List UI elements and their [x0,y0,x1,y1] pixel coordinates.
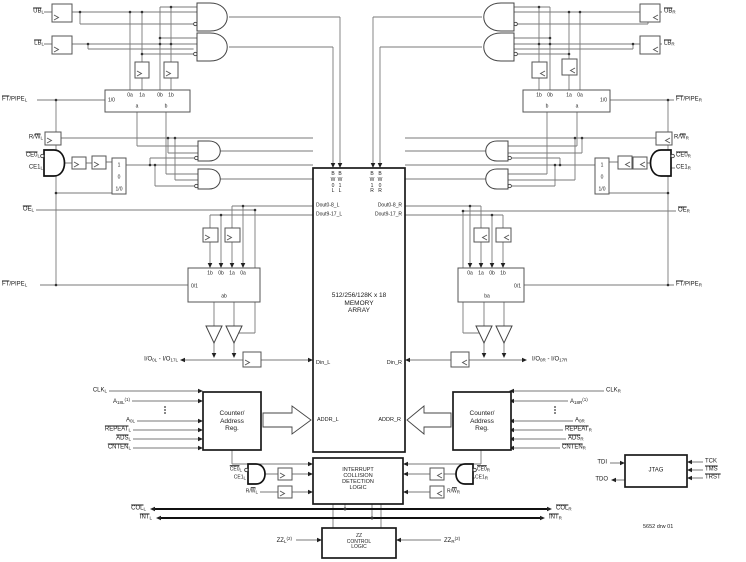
mux4-in-0b: 0b [489,271,495,277]
jtag-box-title: JTAG [649,468,664,475]
mux3-out-a: a [576,104,579,110]
and-gate-lb-right [484,33,514,61]
mux3-in-0a: 0a [577,93,583,99]
signal-ubl-label: UBL [33,9,44,16]
signal-ftpipe-r-bottom-label: FT/PIPER [676,282,702,289]
signal-cnten-l-label: CNTENL [108,445,131,452]
signal-ce1-l-label: CE1L [29,165,43,172]
mux1-out-b: b [165,104,168,110]
and-gate-lb-left [197,33,227,61]
mux4-in-0a: 0a [467,271,473,277]
and-gate-ce-left [44,150,65,176]
signal-oe-l-label: OEL [23,207,34,214]
mux2-in-1b: 1b [207,271,213,277]
mux4-select: 0/1 [514,284,521,290]
zz-box-title: ZZ CONTROL LOGIC [322,534,396,551]
memory-bw1l-pin: B W 1 L [336,172,344,195]
mux2-in-0b: 0b [218,271,224,277]
io-bus-right-label: I/O0R - I/O17R [532,357,567,364]
signal-ce0-r-int-label: CE0R [477,467,490,473]
block-diagram: UBL LBL FT/PIPEL FT/PIPEL R/WL CE0L CE1L… [0,0,746,562]
latch-intrw-left [278,486,292,498]
latch-ce1-left [72,157,86,169]
signal-rw-l-int-label: R/WL [246,489,258,495]
memory-din-r-pin: Din_R [387,360,402,366]
mux2-out-ab: ab [221,294,227,300]
signal-clk-r-label: CLKR [606,388,621,395]
signal-tms-label: TMS [705,467,718,474]
signal-zz-r-label: ZZR(2) [444,535,460,545]
signal-ftpipe-r-top-label: FT/PIPER [676,97,702,104]
mux-byteen-left [105,90,190,112]
and-gate-int-right [456,464,473,484]
mux2-in-0a: 0a [240,271,246,277]
mux1-in-1b: 1b [168,93,174,99]
col-int-buses [155,509,547,518]
signal-repeat-l-label: REPEATL [105,427,131,434]
signal-ftpipe-l-top-label: FT/PIPEL [2,97,27,104]
signal-oe-r-label: OER [678,208,690,215]
signal-cnten-r-label: CNTENR [562,445,586,452]
signal-ubr-label: UBR [664,9,676,16]
latch-intce-right [430,468,444,480]
signal-tdi-label: TDI [597,460,607,467]
mux1-out-a: a [136,104,139,110]
signal-int-r-label: INTR [549,515,562,522]
signal-ce0-l-int-label: CE0L [230,467,242,473]
memory-dout-r1-pin: Dout0-8_R [378,203,402,209]
mux-ce-left-sel: 1/0 [116,187,123,193]
signal-lbl-label: LBL [34,41,44,48]
memory-dout-r2-pin: Dout9-17_R [375,212,402,218]
memory-din-l-pin: Din_L [316,360,330,366]
mux3-in-1a: 1a [566,93,572,99]
major-boxes [203,168,687,558]
mux-ce-right-1: 1 [601,163,604,169]
mux1-select: 1/0 [108,98,115,104]
latch-intce-left [278,468,292,480]
and-gate-ub-left [197,3,227,31]
signal-col-r-label: COLR [556,506,572,513]
latch-intrw-right [430,486,444,498]
signal-col-l-label: COLL [131,506,146,513]
mux3-out-b: b [546,104,549,110]
mux3-select: 1/0 [600,98,607,104]
memory-addr-l-pin: ADDR_L [317,417,339,423]
mux1-in-0a: 0a [127,93,133,99]
and-gate-bw0-right [486,141,508,161]
signal-a0-l-label: A0L [126,418,135,425]
signal-rw-r-int-label: R/WR [447,489,460,495]
memory-bw1r-pin: B W 1 R [368,172,376,195]
signal-ce0-l-label: CE0L [26,153,40,160]
counter-left-title: Counter/ Address Reg. [203,410,261,433]
mux-ce-left-1: 1 [118,163,121,169]
counter-right-title: Counter/ Address Reg. [453,410,511,433]
signal-ce0-r-label: CE0R [676,153,691,160]
and-gate-bw1-left [198,169,220,189]
signal-tdo-label: TDO [595,477,608,484]
drawing-number: 5652 drw 01 [643,524,673,530]
mux4-out-ba: ba [484,294,490,300]
signal-tck-label: TCK [705,459,717,466]
signal-ftpipe-l-bottom-label: FT/PIPEL [2,282,27,289]
signal-int-l-label: INTL [140,515,152,522]
signal-ce1-r-int-label: CE1R [475,475,488,481]
and-gate-ce-right [651,150,672,176]
memory-array-title: 512/256/128K x 18 MEMORY ARRAY [313,292,405,315]
and-gate-bw0-left [198,141,220,161]
signal-ads-l-label: ADSL [116,436,131,443]
signal-clk-l-label: CLKL [93,388,107,395]
memory-dout-l1-pin: Dout0-8_L [316,203,339,209]
io-bus-left-label: I/O0L - I/O17L [144,357,178,364]
memory-dout-l2-pin: Dout9-17_L [316,212,342,218]
signal-a18-r-label: A18R(1) [570,396,588,406]
mux3-in-0b: 0b [547,93,553,99]
memory-addr-r-pin: ADDR_R [378,417,401,423]
mux1-in-1a: 1a [139,93,145,99]
mux4-in-1a: 1a [478,271,484,277]
and-gate-ub-right [484,3,514,31]
mux-ce-right-sel: 1/0 [599,187,606,193]
signal-rw-r-label: R/WR [674,135,689,142]
signal-a0-r-label: A0R [575,418,585,425]
signal-ce1-r-label: CE1R [676,165,691,172]
signal-lbr-label: LBR [664,41,675,48]
mux1-in-0b: 0b [157,93,163,99]
memory-bw0r-pin: B W 0 R [376,172,384,195]
mux-ce-right-0: 0 [601,175,604,181]
latch-ce1-right [633,157,647,169]
mux2-select: 0/1 [191,284,198,290]
signal-rw-l-label: R/WL [29,135,43,142]
and-gate-int-left [248,464,265,484]
and-gate-bw1-right [486,169,508,189]
mux2-in-1a: 1a [229,271,235,277]
interrupt-box-title: INTERRUPT COLLISION DETECTION LOGIC [313,467,403,491]
mux3-in-1b: 1b [536,93,542,99]
signal-a18-l-label: A18L(1) [113,396,130,406]
mux4-in-1b: 1b [500,271,506,277]
signal-trst-label: TRST [705,475,721,482]
signal-repeat-r-label: REPEATR [565,427,592,434]
signal-ce1-l-int-label: CE1L [234,475,246,481]
arrowheads [150,163,692,542]
mux-ce-left-0: 0 [118,175,121,181]
signal-zz-l-label: ZZL(2) [277,535,292,545]
signal-ads-r-label: ADSR [568,436,584,443]
